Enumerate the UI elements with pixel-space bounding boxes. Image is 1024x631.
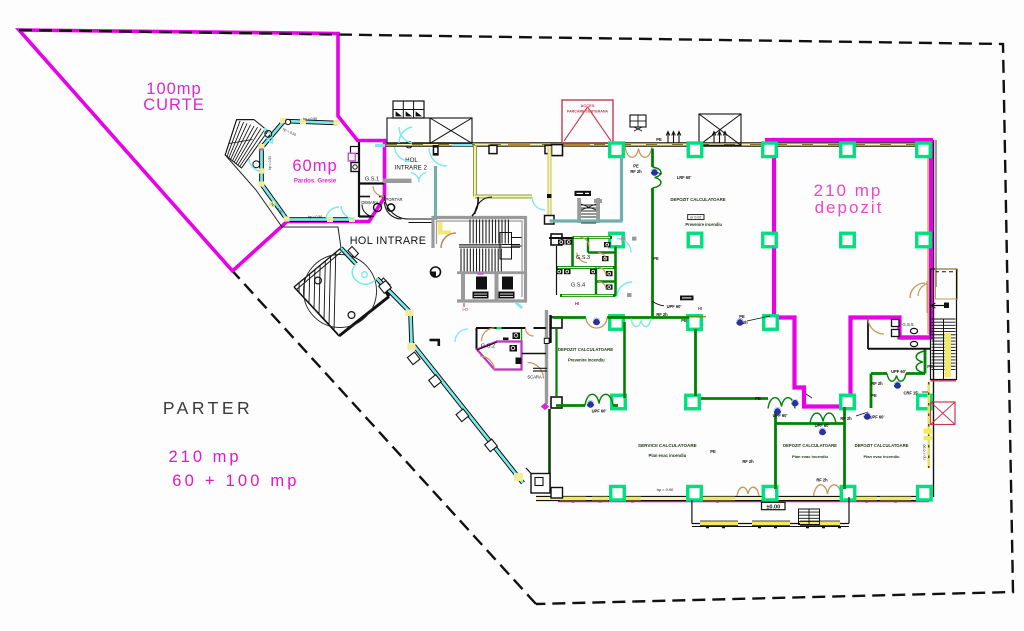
- svg-text:210 mp: 210 mp: [168, 448, 241, 466]
- svg-text:Prevenire incendiu: Prevenire incendiu: [685, 222, 722, 227]
- svg-text:UPF 60': UPF 60': [773, 413, 788, 418]
- svg-text:Prevenire incendiu: Prevenire incendiu: [568, 358, 605, 363]
- svg-text:PE: PE: [871, 393, 877, 398]
- svg-text:depozit: depozit: [815, 198, 884, 217]
- svg-text:PE: PE: [653, 256, 659, 261]
- svg-text:hp = 0.90: hp = 0.90: [657, 487, 675, 492]
- svg-text:G.S.5: G.S.5: [902, 322, 914, 327]
- svg-text:UPF 60': UPF 60': [667, 304, 682, 309]
- svg-text:PE: PE: [681, 318, 687, 323]
- svg-text:CURTE: CURTE: [143, 96, 205, 114]
- svg-text:hp = 0.90: hp = 0.90: [923, 444, 927, 459]
- svg-text:HOL INTRARE: HOL INTRARE: [350, 235, 427, 247]
- svg-text:hp = 0.50: hp = 0.50: [303, 117, 317, 121]
- svg-text:I-0: I-0: [462, 307, 468, 312]
- svg-text:PE: PE: [739, 314, 745, 319]
- svg-text:RF 2h: RF 2h: [816, 478, 828, 483]
- svg-text:ACCES: ACCES: [580, 103, 594, 108]
- svg-text:PE: PE: [656, 137, 662, 142]
- svg-text:PE: PE: [633, 164, 639, 169]
- svg-text:UPF 60': UPF 60': [870, 415, 885, 420]
- svg-text:UPF 60': UPF 60': [891, 369, 906, 374]
- svg-text:RF 2h: RF 2h: [871, 381, 883, 386]
- svg-text:DEBARA: DEBARA: [361, 200, 378, 205]
- svg-text:G.S.2: G.S.2: [481, 344, 495, 350]
- svg-text:DEPOZIT CALCULATOARE: DEPOZIT CALCULATOARE: [558, 347, 613, 352]
- svg-text:PARCARE SUBTERANA: PARCARE SUBTERANA: [567, 110, 608, 114]
- svg-text:60 + 100 mp: 60 + 100 mp: [172, 472, 299, 490]
- svg-text:HI: HI: [698, 306, 702, 311]
- svg-text:G.S.1: G.S.1: [365, 177, 379, 183]
- svg-text:PORTAR: PORTAR: [385, 197, 402, 202]
- svg-text:hp = 0.50: hp = 0.50: [268, 156, 272, 170]
- svg-text:DEPOZIT CALCULATOARE: DEPOZIT CALCULATOARE: [855, 443, 909, 448]
- svg-text:PE: PE: [755, 396, 761, 401]
- svg-text:RF 2h: RF 2h: [840, 416, 852, 421]
- svg-text:RF 2h: RF 2h: [630, 169, 642, 174]
- svg-text:hp = 0.50: hp = 0.50: [308, 215, 322, 219]
- svg-text:SCARA: SCARA: [527, 375, 542, 380]
- svg-text:CRF 15': CRF 15': [903, 391, 918, 396]
- svg-text:RF 2h: RF 2h: [742, 459, 754, 464]
- svg-text:DEPOZIT CALCULATOARE: DEPOZIT CALCULATOARE: [670, 197, 725, 202]
- svg-text:UPF 60': UPF 60': [592, 409, 607, 414]
- svg-text:Plan evac incendiu: Plan evac incendiu: [649, 453, 687, 458]
- svg-text:SERVICII CALCULATOARE: SERVICII CALCULATOARE: [638, 443, 697, 448]
- svg-text:G.S.3: G.S.3: [576, 255, 590, 261]
- svg-text:PARTER: PARTER: [163, 398, 253, 418]
- svg-text:nr 0.02: nr 0.02: [690, 216, 701, 220]
- svg-text:G.S.4: G.S.4: [571, 283, 585, 289]
- svg-text:LRF 60': LRF 60': [677, 175, 692, 180]
- svg-text:INTRARE 2: INTRARE 2: [395, 165, 428, 172]
- svg-text:DEPOZIT CALCULATOARE: DEPOZIT CALCULATOARE: [783, 443, 837, 448]
- svg-text:RF 2h: RF 2h: [656, 312, 668, 317]
- svg-text:PE: PE: [710, 449, 716, 454]
- svg-text:Pardos. Gresie: Pardos. Gresie: [294, 179, 337, 185]
- svg-text:60mp: 60mp: [292, 157, 337, 175]
- svg-text:HI: HI: [575, 301, 579, 306]
- svg-text:Plan evac incendiu: Plan evac incendiu: [792, 454, 829, 459]
- svg-text:UPF 60': UPF 60': [815, 423, 830, 428]
- svg-text:Plan evac incendiu: Plan evac incendiu: [863, 454, 900, 459]
- svg-text:±0.00: ±0.00: [766, 504, 780, 510]
- svg-text:PE: PE: [927, 364, 933, 369]
